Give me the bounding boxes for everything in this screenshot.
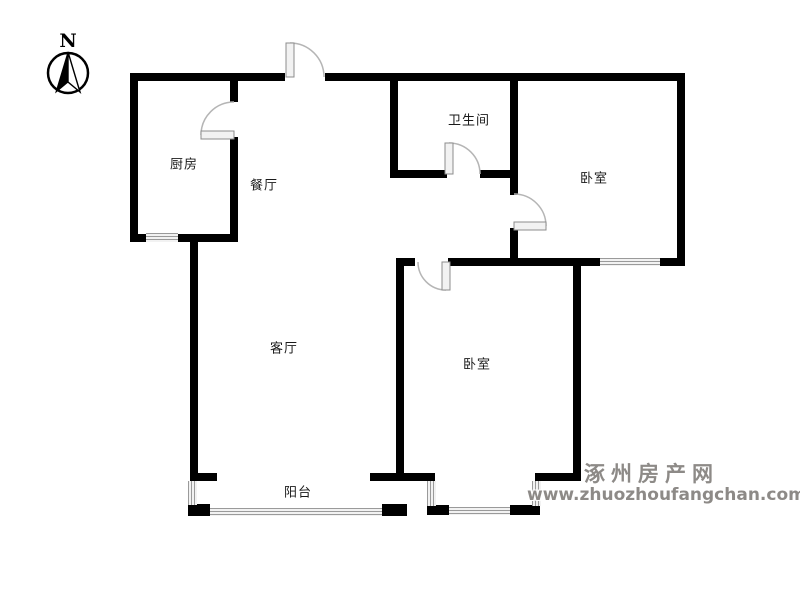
bedroom-bottom-door-leaf (442, 262, 450, 290)
compass-needle-light (68, 52, 80, 92)
room-label-kitchen: 厨房 (170, 154, 198, 173)
door-symbols (0, 0, 800, 600)
north-label: N (59, 30, 76, 52)
bathroom-door-arc (449, 143, 480, 174)
room-label-bathroom: 卫生间 (448, 110, 490, 129)
room-label-balcony: 阳台 (284, 482, 312, 501)
entrance-door-arc (290, 43, 324, 77)
watermark-url: www.zhuozhoufangchan.com (527, 485, 800, 505)
entrance-door-leaf (286, 43, 294, 77)
bedroom-top-door-leaf (514, 222, 546, 230)
room-label-dining: 餐厅 (250, 175, 278, 194)
kitchen-door-leaf (201, 131, 234, 139)
north-compass: N (40, 26, 96, 106)
floor-plan-canvas: 厨房 餐厅 卫生间 卧室 客厅 卧室 阳台 N 涿州房产网 www.zhuozh… (0, 0, 800, 600)
watermark-site-name: 涿州房产网 (584, 458, 719, 488)
room-label-bedroom-top: 卧室 (580, 168, 608, 187)
room-label-living: 客厅 (270, 338, 298, 357)
kitchen-door-arc (201, 102, 234, 135)
room-label-bedroom-bottom: 卧室 (463, 354, 491, 373)
bathroom-door-leaf (445, 143, 453, 174)
compass-needle-dark (56, 52, 68, 92)
bedroom-top-door-arc (514, 194, 546, 226)
